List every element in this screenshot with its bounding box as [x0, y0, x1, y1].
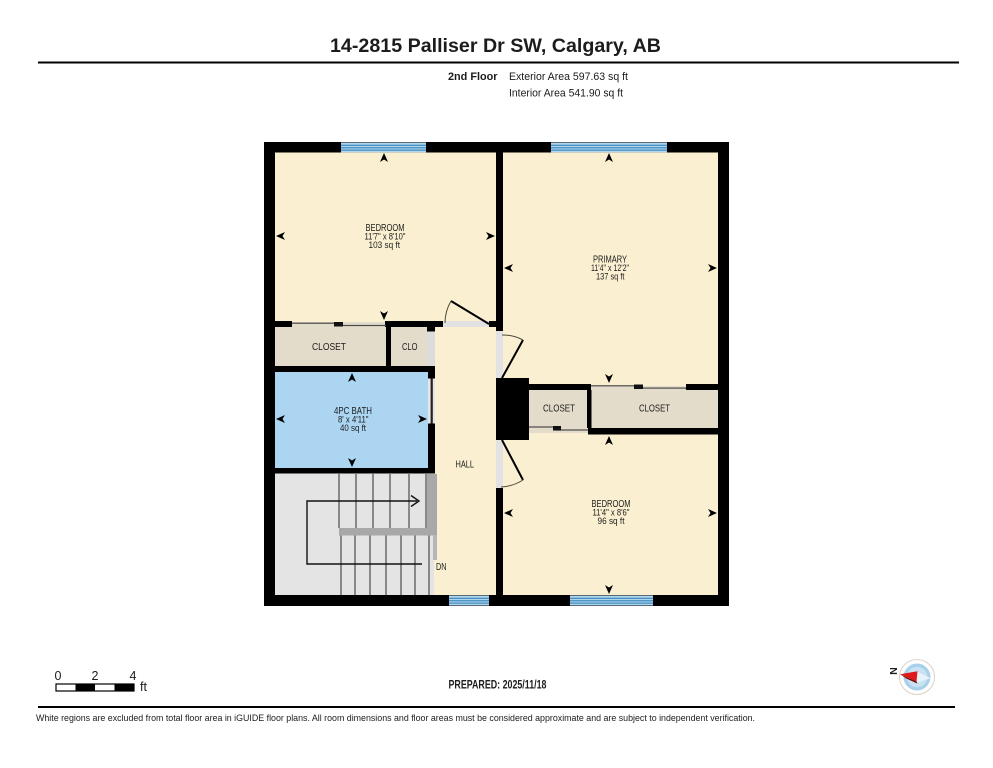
svg-text:0: 0: [55, 669, 62, 683]
svg-text:CLOSET: CLOSET: [543, 404, 575, 415]
svg-text:Exterior Area 597.63 sq ft: Exterior Area 597.63 sq ft: [509, 71, 628, 83]
svg-text:CLO: CLO: [402, 342, 418, 353]
svg-text:DN: DN: [436, 562, 447, 573]
svg-text:HALL: HALL: [456, 460, 475, 471]
svg-text:40 sq ft: 40 sq ft: [340, 423, 366, 433]
svg-text:ft: ft: [140, 680, 147, 694]
svg-text:CLOSET: CLOSET: [312, 342, 346, 353]
svg-text:96 sq ft: 96 sq ft: [598, 516, 625, 526]
svg-text:White regions are excluded fro: White regions are excluded from total fl…: [36, 713, 755, 723]
svg-text:4: 4: [130, 669, 137, 683]
svg-text:2: 2: [92, 669, 99, 683]
svg-text:103 sq ft: 103 sq ft: [369, 240, 401, 250]
svg-text:137 sq ft: 137 sq ft: [596, 272, 625, 282]
svg-text:14-2815 Palliser Dr SW, Calgar: 14-2815 Palliser Dr SW, Calgary, AB: [330, 36, 661, 57]
svg-text:N: N: [887, 667, 899, 675]
svg-text:Interior Area 541.90 sq ft: Interior Area 541.90 sq ft: [509, 87, 623, 99]
svg-text:CLOSET: CLOSET: [639, 404, 670, 415]
svg-text:PREPARED: 2025/11/18: PREPARED: 2025/11/18: [449, 678, 547, 692]
svg-text:2nd Floor: 2nd Floor: [448, 71, 498, 83]
